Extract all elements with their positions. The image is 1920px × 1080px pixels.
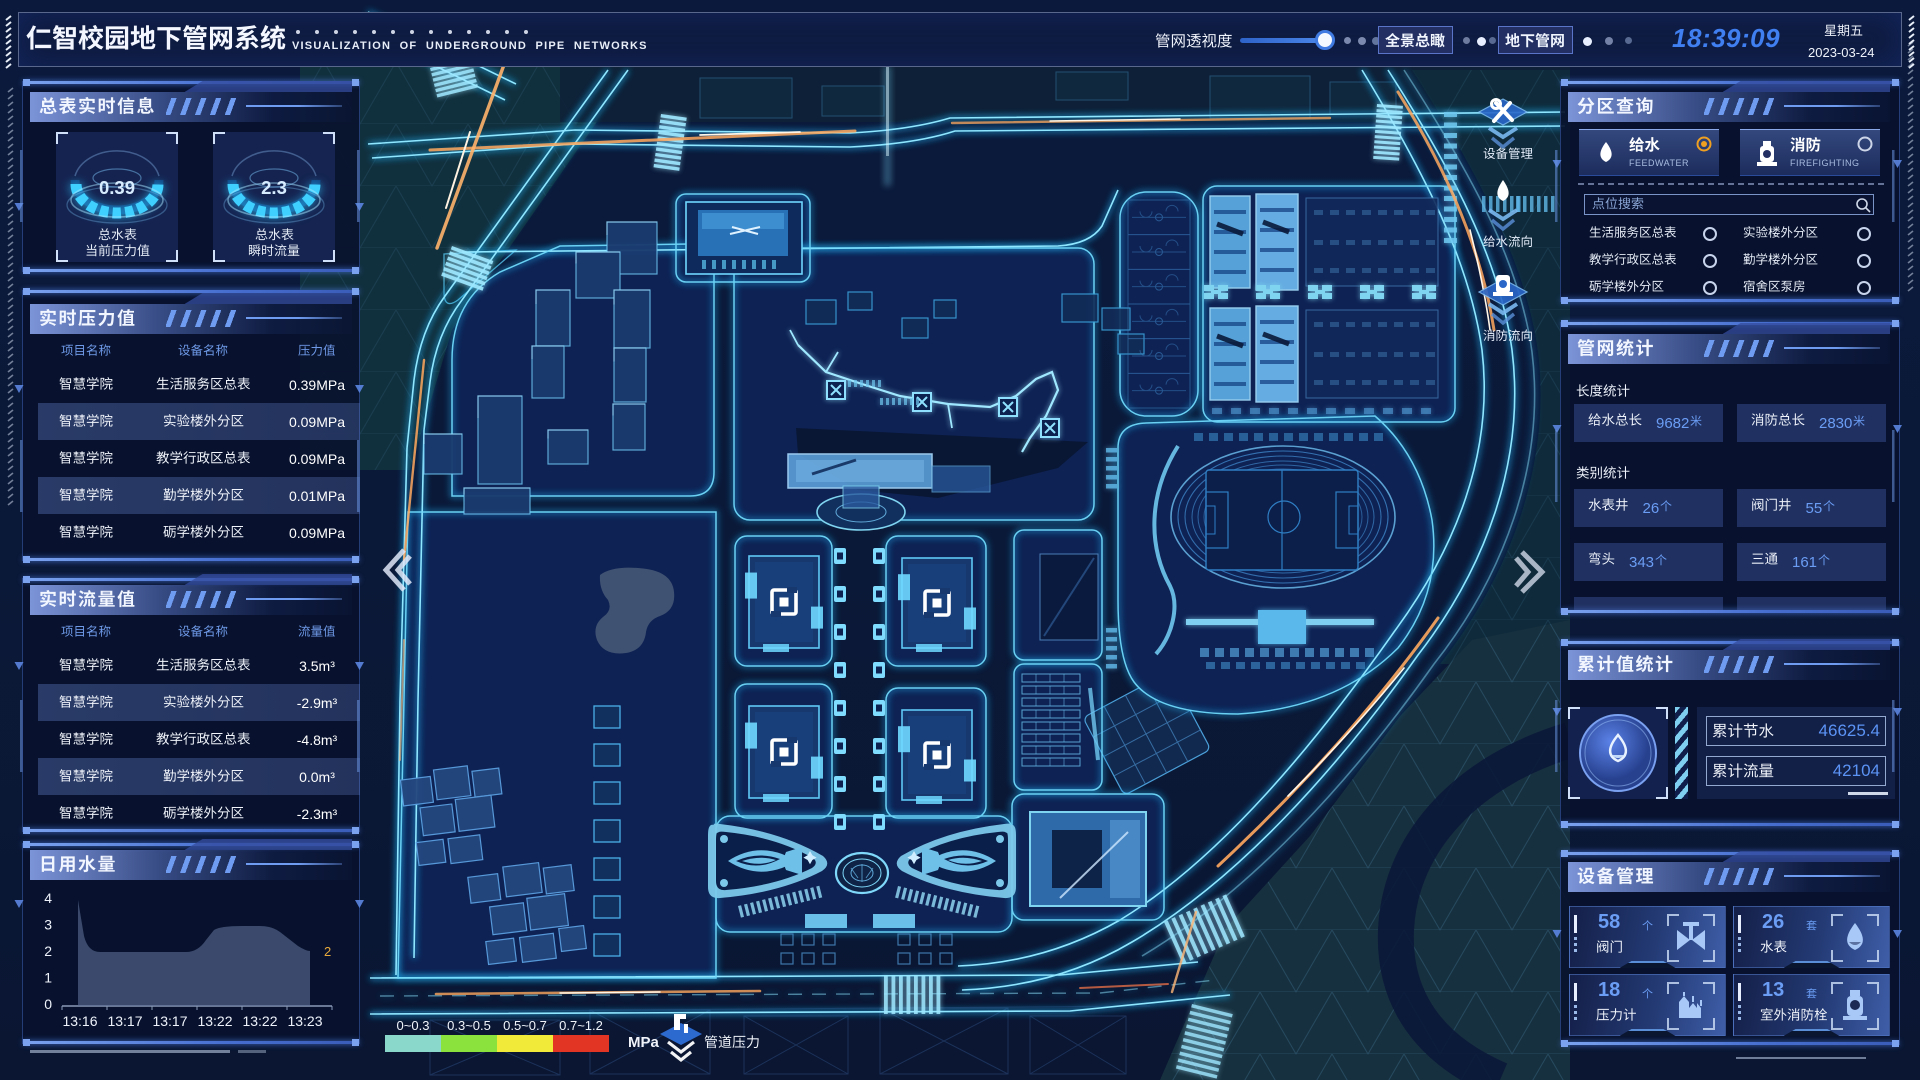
svg-text:13:22: 13:22 [242, 1013, 277, 1029]
svg-text:3: 3 [44, 917, 52, 933]
svg-text:MPa: MPa [628, 1034, 660, 1051]
svg-text:13:23: 13:23 [287, 1013, 322, 1029]
svg-text:4: 4 [44, 890, 52, 906]
svg-text:13:17: 13:17 [152, 1013, 187, 1029]
svg-text:0: 0 [44, 996, 52, 1012]
svg-text:2: 2 [324, 944, 331, 959]
svg-text:13:22: 13:22 [197, 1013, 232, 1029]
svg-text:0.39: 0.39 [99, 177, 135, 198]
svg-text:0.5~0.7: 0.5~0.7 [503, 1018, 547, 1033]
svg-text:13:16: 13:16 [62, 1013, 97, 1029]
svg-text:0~0.3: 0~0.3 [397, 1018, 430, 1033]
svg-text:1: 1 [44, 970, 52, 986]
svg-text:13:17: 13:17 [107, 1013, 142, 1029]
svg-text:2: 2 [44, 943, 52, 959]
svg-text:2.3: 2.3 [261, 177, 287, 198]
svg-text:0.3~0.5: 0.3~0.5 [447, 1018, 491, 1033]
svg-text:0.7~1.2: 0.7~1.2 [559, 1018, 603, 1033]
